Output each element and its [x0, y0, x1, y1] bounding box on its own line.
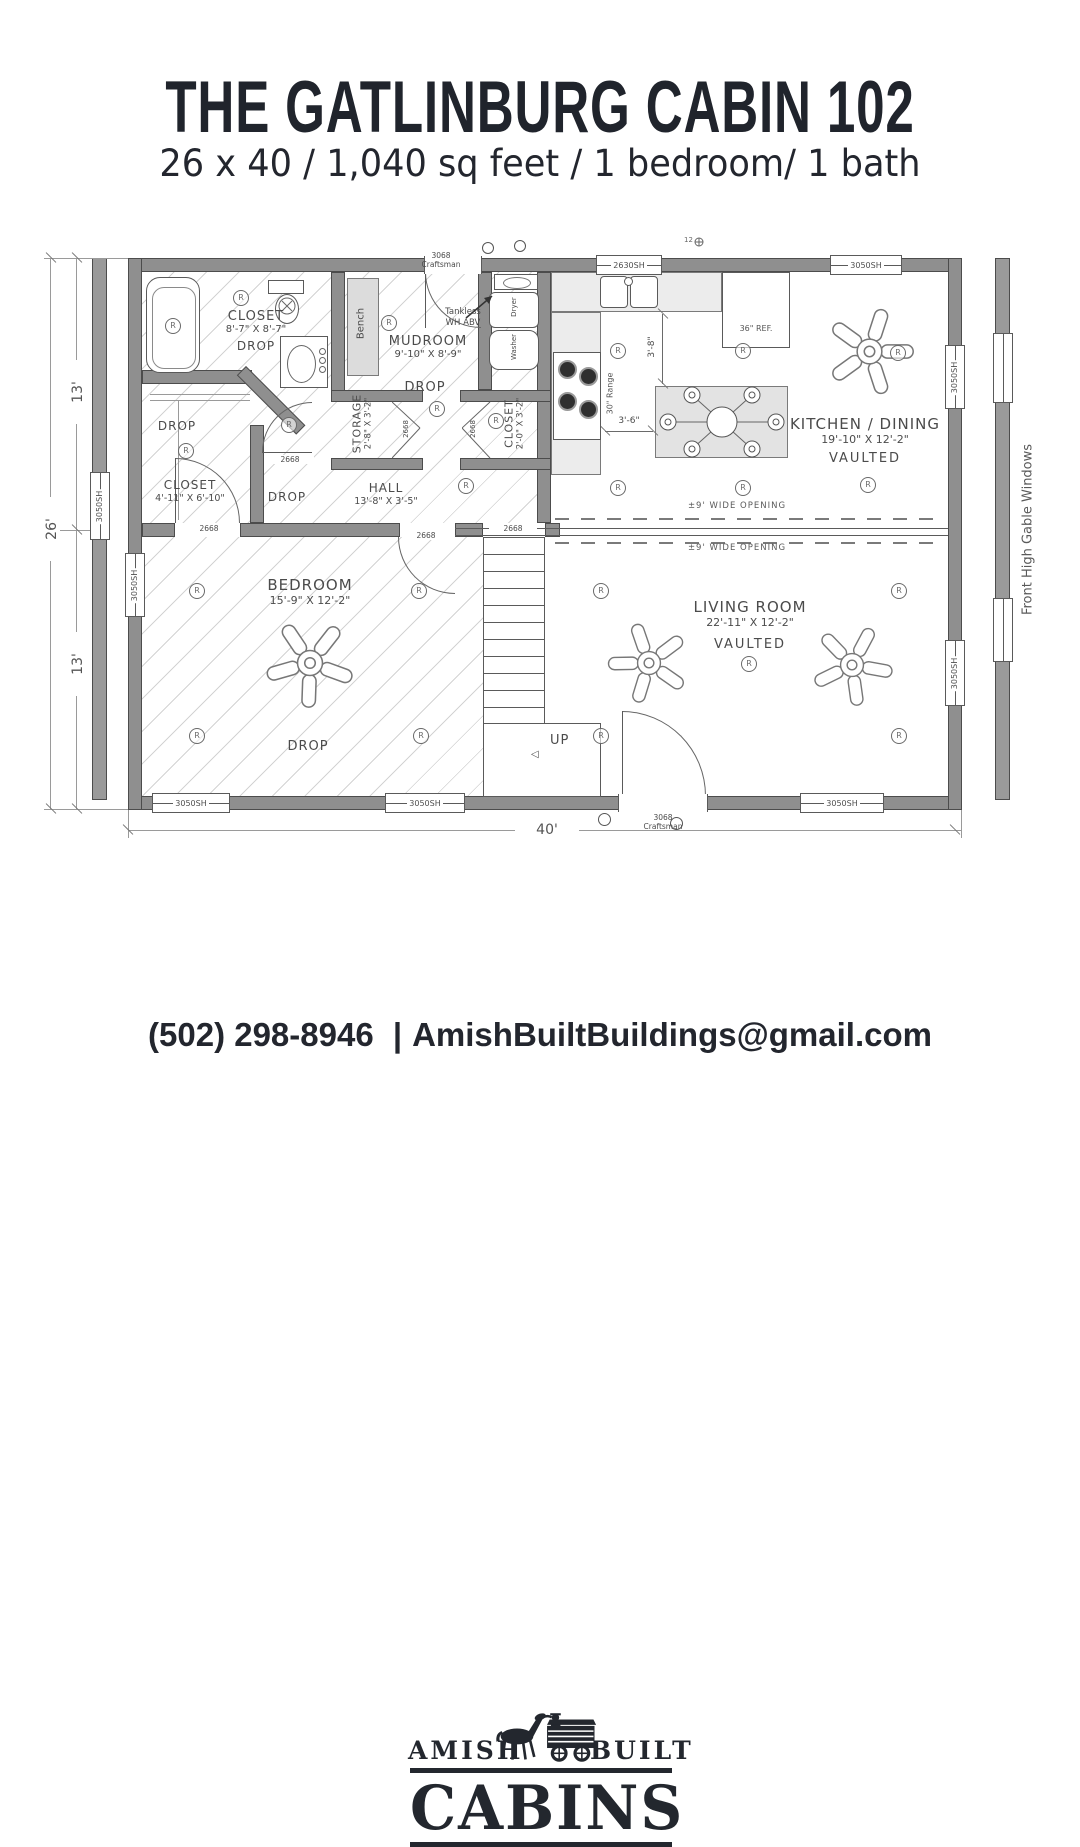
room-kitchen-note: VAULTED [775, 451, 955, 466]
recessed-light-icon: R [735, 343, 751, 359]
room-bath-dims: 8'-7" X 8'-7" [186, 324, 326, 335]
window-label: 3050SH [131, 567, 140, 602]
door-size: Craftsman [406, 260, 476, 269]
room-mudroom-dims: 9'-10" X 8'-9" [358, 349, 498, 360]
toilet-tank [268, 280, 304, 294]
recessed-light-icon: R [411, 583, 427, 599]
room-closet-name: CLOSET [130, 478, 250, 492]
ceiling-fan-icon [262, 615, 358, 711]
room-kitchen-dims: 19'-10" X 12'-2" [775, 433, 955, 446]
window-kitchen-top: 3050SH [830, 255, 902, 275]
room-hall-dims: 13'-8" X 3'-5" [336, 496, 436, 507]
horse-and-wagon-logo-icon [488, 1704, 604, 1772]
room-living-dims: 22'-11" X 12'-2" [650, 616, 850, 629]
kitchen-faucet [624, 277, 633, 286]
window-kitchen-sink: 2630SH [596, 255, 662, 275]
door-2668-label: 2668 [266, 455, 314, 464]
washer-label: Washer [510, 317, 518, 377]
door-2668-label: 2668 [185, 524, 233, 533]
mudroom-drop-label: DROP [385, 380, 465, 395]
room-closet-dims: 4'-11" X 6'-10" [130, 493, 250, 504]
room-kitchen-name: KITCHEN / DINING [775, 415, 955, 433]
recessed-light-icon: R [891, 728, 907, 744]
room-bedroom-dims: 15'-9" X 12'-2" [230, 594, 390, 607]
recessed-light-icon: R [458, 478, 474, 494]
wide-opening-label: ±9' WIDE OPENING [657, 543, 817, 553]
window-bedroom-bottom-2: 3050SH [385, 793, 465, 813]
window-label: 3050SH [407, 799, 442, 808]
door-size: 3068 [406, 251, 476, 260]
recessed-light-icon: R [429, 401, 445, 417]
recessed-light-icon: R [890, 345, 906, 361]
dim-line-13 [76, 258, 77, 810]
stairs-up-arrow-icon: ◁ [531, 749, 539, 760]
window-label: 2630SH [611, 261, 646, 270]
door-2668-label: 2668 [469, 407, 477, 451]
door-2668-label: 2668 [402, 531, 450, 540]
wall-mid-1 [142, 523, 175, 537]
tankless-label-2: WH ABV [423, 318, 503, 328]
faucet-handle [319, 366, 326, 373]
room-hall-name: HALL [336, 481, 436, 495]
front-door-opening [618, 794, 708, 812]
wall-bath-mudroom [331, 272, 345, 394]
front-door-leaf [622, 711, 623, 796]
fridge-label: 36" REF. [724, 324, 788, 333]
stairs-up-label: UP [550, 733, 569, 748]
burner-icon [579, 367, 598, 386]
door-2668-label: 2668 [402, 407, 410, 451]
poster: THE GATLINBURG CABIN 102 26 x 40 / 1,040… [0, 0, 1080, 1080]
recessed-light-icon: R [165, 318, 181, 334]
brand-logo: AMISH BUILT [0, 850, 1080, 1010]
opening-dashed-line [555, 518, 945, 520]
dim-26-label: 26' [44, 497, 60, 561]
room-wd-closet-name: CLOSET [503, 374, 516, 474]
closet-shelf-line [150, 400, 250, 401]
hall-drop-label: DROP [247, 490, 327, 504]
fridge [722, 272, 790, 348]
dim-line-3-8 [662, 314, 663, 384]
wall-mid-2 [240, 523, 400, 537]
front-door-swing [622, 711, 706, 796]
recessed-light-icon: R [860, 477, 876, 493]
dim-3-8-label: 3'-8" [647, 317, 657, 377]
dim-ext-line [44, 809, 128, 810]
logo-cabins-text: CABINS [410, 1772, 672, 1843]
window-label: 3050SH [824, 799, 859, 808]
room-storage-name: STORAGE [351, 374, 364, 474]
closet-shelf-line [150, 394, 250, 395]
dim-3-6-label: 3'-6" [599, 416, 659, 426]
faucet-handle [319, 357, 326, 364]
recessed-light-icon: R [178, 443, 194, 459]
window-living-right: 3050SH [945, 640, 965, 706]
porch-light-icon [482, 242, 494, 254]
dim-ext-line [44, 258, 128, 259]
burner-icon [579, 400, 598, 419]
front-door-size-label: 3068 Craftsman [628, 813, 698, 831]
recessed-light-icon: R [593, 728, 609, 744]
back-door-size-label: 3068 Craftsman [406, 251, 476, 269]
recessed-light-icon: R [189, 583, 205, 599]
dim-40-label: 40' [515, 822, 579, 838]
gable-note: Front High Gable Windows [1021, 430, 1036, 630]
porch-light-icon [514, 240, 526, 252]
recessed-light-icon: R [735, 480, 751, 496]
gable-window-right [993, 333, 1013, 403]
bedroom-drop-label: DROP [268, 739, 348, 754]
room-mudroom-name: MUDROOM [358, 334, 498, 349]
gable-window-right [993, 598, 1013, 662]
recessed-light-icon: R [891, 583, 907, 599]
phone-number: (502) 298-8946 [148, 1016, 374, 1053]
window-bedroom-bottom-1: 3050SH [152, 793, 230, 813]
recessed-light-icon: R [189, 728, 205, 744]
recessed-light-icon: R [281, 417, 297, 433]
email-address: AmishBuiltBuildings@gmail.com [412, 1016, 932, 1053]
wall-exterior-right [948, 258, 962, 810]
recessed-light-icon: R [233, 290, 249, 306]
tankless-label-1: Tankless [423, 307, 503, 317]
room-living-name: LIVING ROOM [650, 598, 850, 616]
window-label: 3050SH [848, 261, 883, 270]
bifold-door-wd-closet [462, 400, 492, 460]
room-bath-name: CLOSET [186, 309, 326, 324]
recessed-light-icon: R [610, 480, 626, 496]
porch-light-icon [598, 813, 611, 826]
room-storage-label: STORAGE 2'-8" X 3'-2" [351, 374, 374, 474]
window-kitchen-right: 3050SH [945, 345, 965, 409]
beam-line [455, 535, 948, 536]
range-label: 30" Range [606, 364, 615, 424]
fixture-cross-icon [694, 237, 704, 247]
ceiling-fan-icon [605, 619, 693, 707]
door-2668-label: 2668 [489, 524, 537, 533]
window-label: 3050SH [951, 359, 960, 394]
window-label: 3050SH [173, 799, 208, 808]
logo-divider-bottom [410, 1842, 672, 1847]
wall-exterior-left [128, 258, 142, 810]
window-label: 3050SH [96, 488, 105, 523]
burner-icon [558, 392, 577, 411]
door-size: 3068 [628, 813, 698, 822]
recessed-light-icon: R [593, 583, 609, 599]
window-bedroom-left: 3050SH [125, 553, 145, 617]
recessed-light-icon: R [741, 656, 757, 672]
room-wd-closet-label: CLOSET 2'-0" X 3'-2" [503, 374, 526, 474]
ceiling-fan-icon [808, 621, 896, 709]
dining-table-and-chairs [652, 382, 792, 462]
misc-12-label: 12 [684, 236, 693, 244]
closet-drop-label: DROP [137, 419, 217, 433]
stair-landing [483, 723, 601, 797]
recessed-light-icon: R [413, 728, 429, 744]
room-wd-closet-dims: 2'-0" X 3'-2" [516, 374, 526, 474]
gable-window-left: 3050SH [90, 472, 110, 540]
contact-line: (502) 298-8946 |AmishBuiltBuildings@gmai… [0, 1016, 1080, 1054]
dim-ext-line [961, 810, 962, 838]
recessed-light-icon: R [610, 343, 626, 359]
dim-13-top-label: 13' [70, 360, 86, 424]
window-label: 3050SH [951, 655, 960, 690]
contact-separator: | [393, 1016, 402, 1053]
dim-ext-line [128, 810, 129, 838]
room-bath-note: DROP [186, 339, 326, 353]
wide-opening-label: ±9' WIDE OPENING [657, 501, 817, 511]
bath-door-leaf [262, 452, 312, 453]
door-size: Craftsman [628, 822, 698, 831]
wall-closet-right [250, 425, 264, 523]
logo-built-text: BUILT [590, 1736, 694, 1765]
room-living-note: VAULTED [650, 637, 850, 652]
dim-line-3-6 [605, 431, 653, 432]
room-bedroom-name: BEDROOM [230, 576, 390, 594]
recessed-light-icon: R [381, 315, 397, 331]
kitchen-sink-basin [630, 276, 658, 308]
dim-13-bottom-label: 13' [70, 632, 86, 696]
burner-icon [558, 360, 577, 379]
window-living-bottom: 3050SH [800, 793, 884, 813]
staircase [483, 537, 545, 725]
room-storage-dims: 2'-8" X 3'-2" [364, 374, 374, 474]
